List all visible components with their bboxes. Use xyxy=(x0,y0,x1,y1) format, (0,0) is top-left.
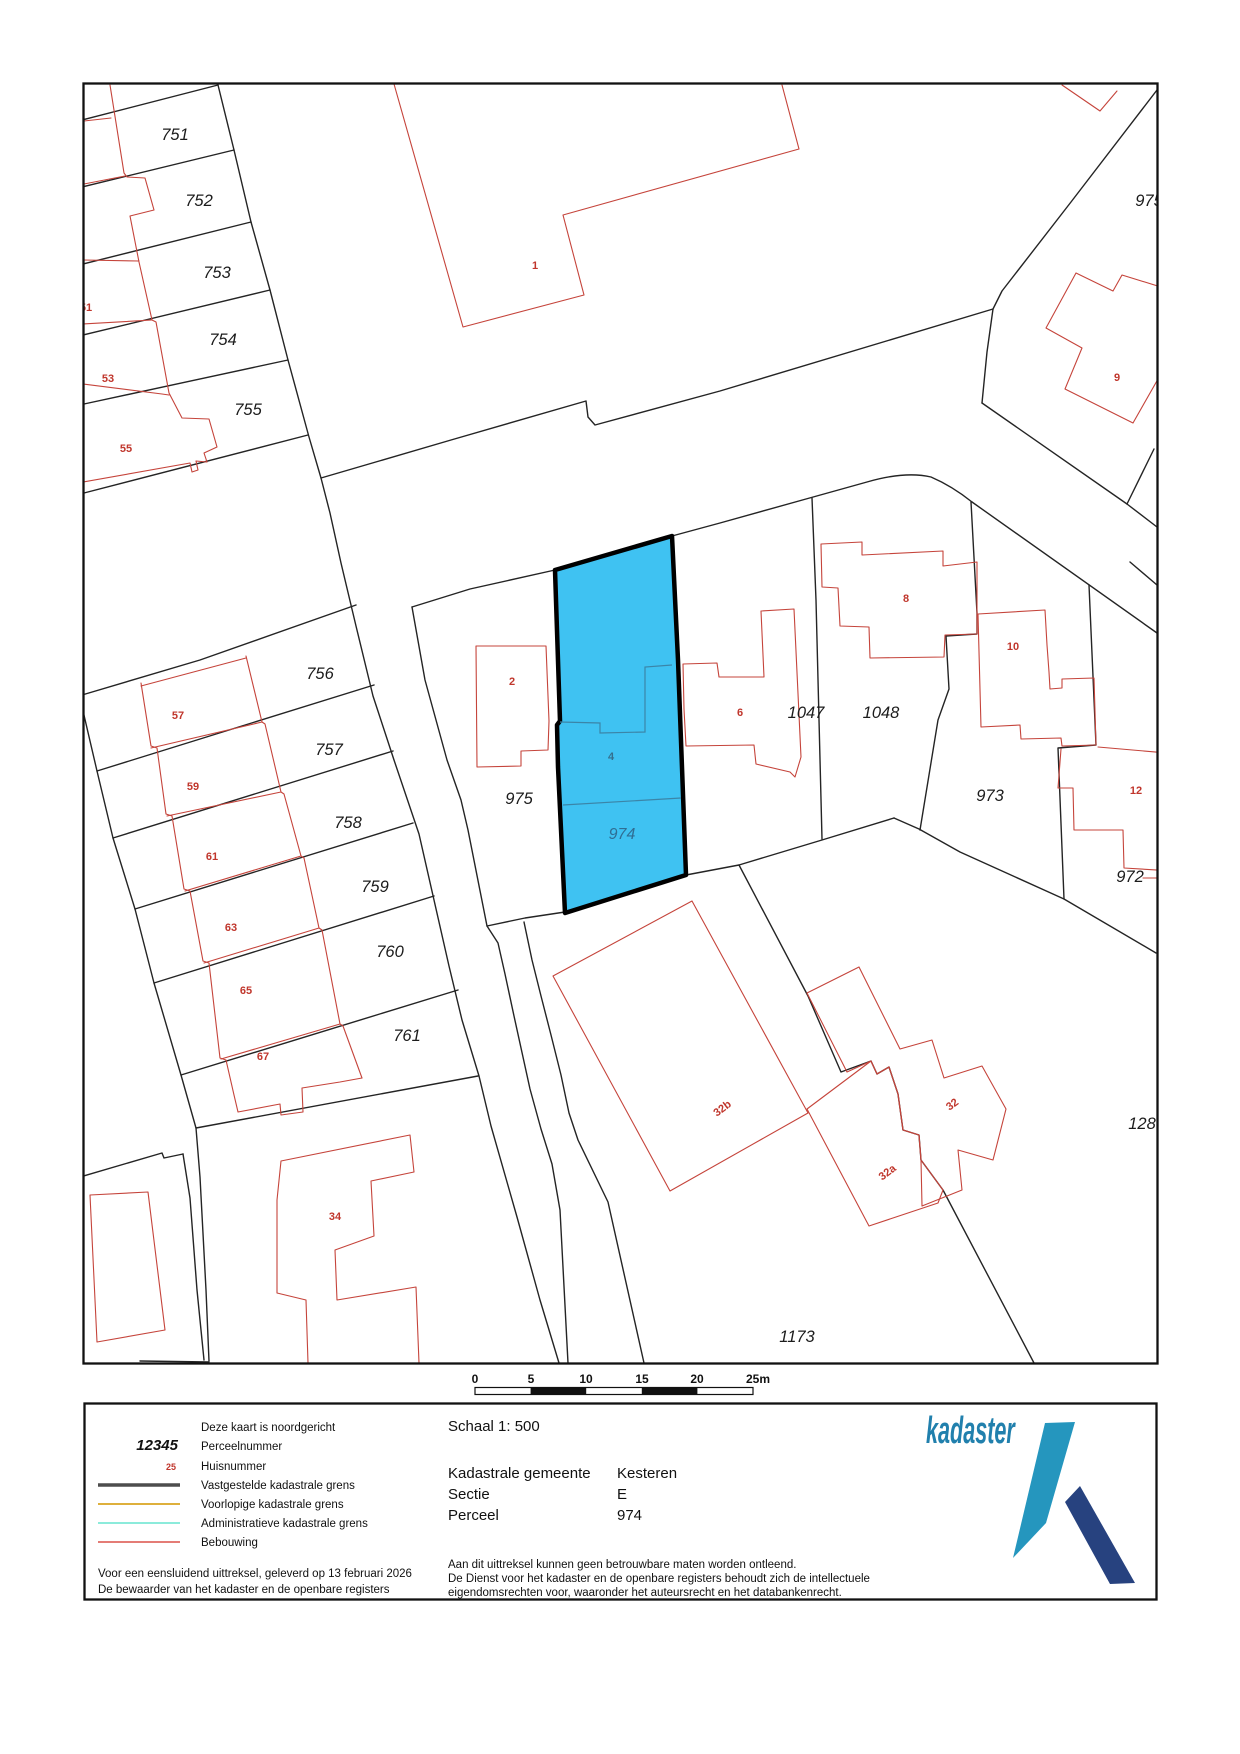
svg-text:6: 6 xyxy=(737,707,743,719)
svg-text:756: 756 xyxy=(306,665,334,683)
svg-text:10: 10 xyxy=(1007,641,1019,653)
svg-text:Deze kaart is noordgericht: Deze kaart is noordgericht xyxy=(201,1422,336,1434)
svg-text:752: 752 xyxy=(185,192,213,210)
svg-text:25: 25 xyxy=(166,1462,176,1472)
svg-text:Schaal 1: 500: Schaal 1: 500 xyxy=(448,1418,540,1435)
svg-text:0: 0 xyxy=(472,1372,479,1386)
svg-text:E: E xyxy=(617,1486,627,1503)
svg-text:128: 128 xyxy=(1128,1115,1156,1133)
svg-text:65: 65 xyxy=(240,985,252,997)
svg-text:753: 753 xyxy=(203,264,231,282)
svg-text:760: 760 xyxy=(376,943,404,961)
svg-text:20: 20 xyxy=(690,1372,704,1386)
svg-text:Perceel: Perceel xyxy=(448,1507,499,1524)
svg-text:761: 761 xyxy=(393,1027,421,1045)
svg-text:972: 972 xyxy=(1116,868,1144,886)
svg-text:8: 8 xyxy=(903,593,909,605)
svg-text:Sectie: Sectie xyxy=(448,1486,490,1503)
svg-text:De bewaarder van het kadaster: De bewaarder van het kadaster en de open… xyxy=(98,1584,390,1596)
svg-text:9: 9 xyxy=(1114,372,1120,384)
svg-text:2: 2 xyxy=(509,676,515,688)
svg-text:751: 751 xyxy=(161,126,189,144)
svg-text:Kadastrale gemeente: Kadastrale gemeente xyxy=(448,1465,591,1482)
svg-text:De Dienst voor het kadaster en: De Dienst voor het kadaster en de openba… xyxy=(448,1573,870,1585)
svg-text:1047: 1047 xyxy=(788,704,826,722)
svg-text:5: 5 xyxy=(528,1372,535,1386)
svg-text:61: 61 xyxy=(206,851,218,863)
svg-text:759: 759 xyxy=(361,878,389,896)
svg-text:1173: 1173 xyxy=(779,1328,815,1346)
svg-text:12345: 12345 xyxy=(136,1437,178,1454)
svg-text:Administratieve kadastrale gre: Administratieve kadastrale grens xyxy=(201,1518,368,1530)
svg-text:12: 12 xyxy=(1130,785,1142,797)
svg-text:25m: 25m xyxy=(746,1372,770,1386)
svg-text:Huisnummer: Huisnummer xyxy=(201,1461,266,1473)
svg-text:Voorlopige kadastrale grens: Voorlopige kadastrale grens xyxy=(201,1499,344,1511)
svg-text:34: 34 xyxy=(329,1211,342,1223)
svg-text:Bebouwing: Bebouwing xyxy=(201,1537,258,1549)
svg-text:755: 755 xyxy=(234,401,262,419)
svg-text:Kesteren: Kesteren xyxy=(617,1465,677,1482)
svg-text:Aan dit uittreksel kunnen geen: Aan dit uittreksel kunnen geen betrouwba… xyxy=(448,1559,796,1571)
svg-text:59: 59 xyxy=(187,781,199,793)
svg-text:Voor een eensluidend uittrekse: Voor een eensluidend uittreksel, gelever… xyxy=(98,1568,412,1580)
svg-text:63: 63 xyxy=(225,922,237,934)
svg-text:kadaster: kadaster xyxy=(926,1409,1016,1452)
svg-text:57: 57 xyxy=(172,710,184,722)
svg-text:974: 974 xyxy=(609,826,636,843)
svg-text:974: 974 xyxy=(617,1507,642,1524)
svg-text:757: 757 xyxy=(315,741,343,759)
svg-text:15: 15 xyxy=(635,1372,649,1386)
svg-text:55: 55 xyxy=(120,443,132,455)
svg-text:eigendomsrechten voor, waarond: eigendomsrechten voor, waaronder het aut… xyxy=(448,1587,842,1599)
svg-text:758: 758 xyxy=(334,814,362,832)
svg-text:10: 10 xyxy=(579,1372,593,1386)
svg-text:4: 4 xyxy=(608,751,615,763)
svg-text:754: 754 xyxy=(209,331,237,349)
svg-text:975: 975 xyxy=(505,790,533,808)
svg-text:1048: 1048 xyxy=(863,704,901,722)
svg-text:53: 53 xyxy=(102,373,114,385)
svg-text:67: 67 xyxy=(257,1051,269,1063)
svg-text:Vastgestelde kadastrale grens: Vastgestelde kadastrale grens xyxy=(201,1480,355,1492)
svg-text:973: 973 xyxy=(976,787,1004,805)
svg-text:1: 1 xyxy=(532,260,538,272)
svg-text:Perceelnummer: Perceelnummer xyxy=(201,1441,282,1453)
